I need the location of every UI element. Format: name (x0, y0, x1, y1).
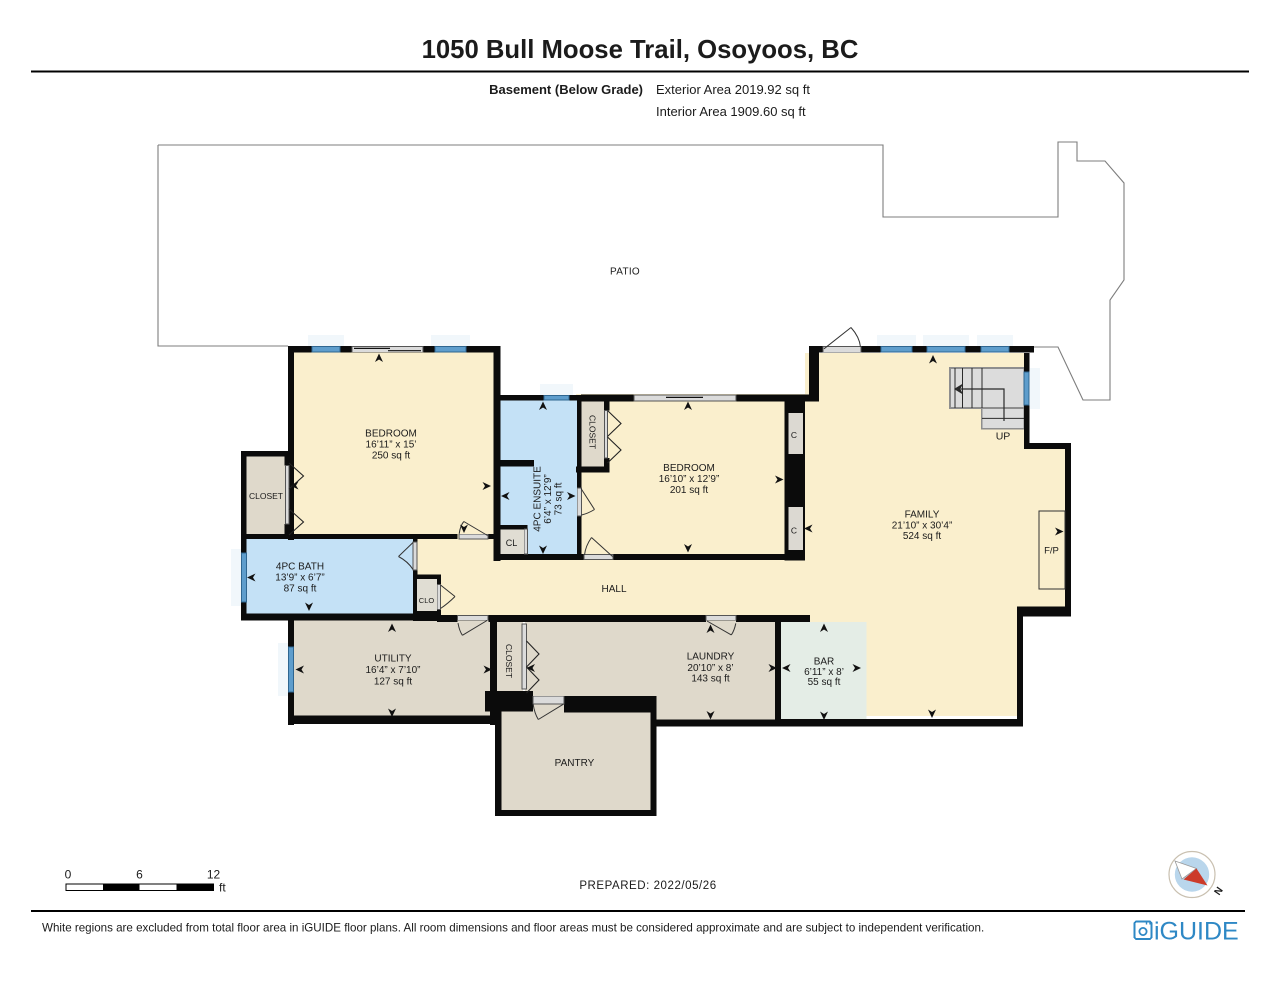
svg-text:C: C (791, 430, 797, 440)
svg-text:LAUNDRY: LAUNDRY (687, 652, 735, 663)
svg-text:PREPARED: 2022/05/26: PREPARED: 2022/05/26 (579, 880, 716, 892)
svg-text:BEDROOM: BEDROOM (365, 429, 417, 440)
svg-text:87 sq ft: 87 sq ft (284, 584, 317, 595)
svg-text:CLOSET: CLOSET (588, 415, 598, 449)
svg-text:16’4” x 7’10”: 16’4” x 7’10” (365, 665, 420, 676)
svg-text:UP: UP (996, 431, 1011, 443)
svg-text:524 sq ft: 524 sq ft (903, 531, 942, 542)
svg-text:FAMILY: FAMILY (905, 510, 940, 521)
svg-text:4PC BATH: 4PC BATH (276, 562, 324, 573)
svg-text:6: 6 (136, 868, 143, 882)
svg-text:CLOSET: CLOSET (504, 644, 514, 678)
svg-text:HALL: HALL (601, 584, 626, 595)
svg-text:Exterior Area 2019.92 sq ft: Exterior Area 2019.92 sq ft (656, 82, 810, 97)
svg-text:16’11” x 15’: 16’11” x 15’ (366, 440, 417, 451)
svg-text:Interior Area 1909.60 sq ft: Interior Area 1909.60 sq ft (656, 104, 806, 119)
svg-text:CL: CL (506, 538, 518, 548)
svg-text:127 sq ft: 127 sq ft (374, 677, 413, 688)
svg-text:21’10” x 30’4”: 21’10” x 30’4” (892, 521, 953, 532)
svg-text:PATIO: PATIO (610, 267, 640, 278)
svg-text:55 sq ft: 55 sq ft (808, 677, 841, 688)
svg-text:CLOSET: CLOSET (249, 491, 283, 501)
svg-text:BAR: BAR (814, 657, 835, 668)
svg-text:4PC ENSUITE: 4PC ENSUITE (533, 466, 544, 532)
svg-text:UTILITY: UTILITY (374, 654, 412, 665)
svg-text:12: 12 (207, 868, 221, 882)
svg-text:201 sq ft: 201 sq ft (670, 485, 709, 496)
svg-text:iGUIDE: iGUIDE (1154, 918, 1239, 946)
svg-text:PANTRY: PANTRY (555, 758, 595, 769)
svg-text:73 sq ft: 73 sq ft (554, 482, 565, 515)
svg-text:C: C (791, 526, 797, 536)
svg-text:BEDROOM: BEDROOM (663, 463, 715, 474)
svg-text:ft: ft (219, 881, 226, 895)
svg-text:F/P: F/P (1044, 546, 1059, 557)
svg-text:250 sq ft: 250 sq ft (372, 451, 411, 462)
svg-text:Basement (Below Grade): Basement (Below Grade) (489, 82, 643, 97)
svg-text:16’10” x 12’9”: 16’10” x 12’9” (659, 474, 720, 485)
svg-text:White regions are excluded fro: White regions are excluded from total fl… (42, 922, 984, 935)
svg-text:CLO: CLO (419, 596, 435, 605)
svg-text:143 sq ft: 143 sq ft (691, 674, 730, 685)
svg-text:20’10” x 8’: 20’10” x 8’ (687, 663, 733, 674)
svg-text:1050 Bull Moose Trail, Osoyoos: 1050 Bull Moose Trail, Osoyoos, BC (422, 36, 859, 64)
svg-text:0: 0 (65, 868, 72, 882)
svg-text:6’4” x 12’9”: 6’4” x 12’9” (543, 474, 554, 523)
svg-text:13’9” x 6’7”: 13’9” x 6’7” (275, 573, 324, 584)
